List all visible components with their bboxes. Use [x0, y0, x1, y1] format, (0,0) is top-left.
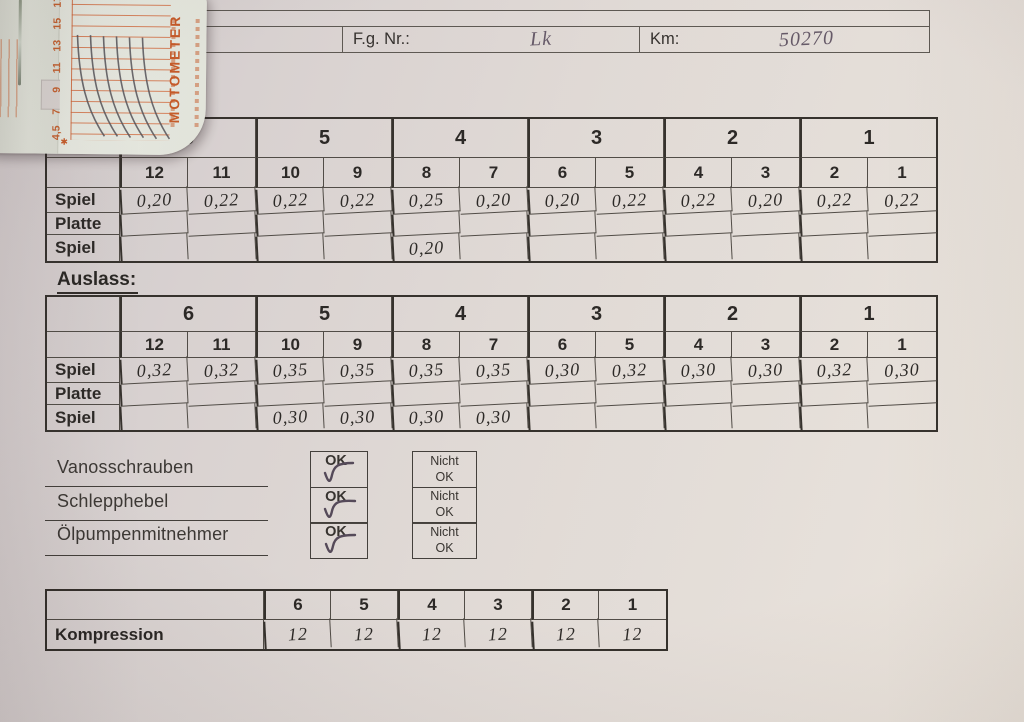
cylinder-group-header: 5	[256, 119, 392, 158]
scale-tick: 13	[51, 36, 63, 56]
card-fine-print	[195, 17, 200, 127]
compression-value-cell: 12	[598, 618, 666, 650]
measurement-cell: 0,32	[187, 356, 256, 385]
measurement-cell: 0,25	[391, 186, 460, 215]
measurement-cell	[867, 403, 936, 432]
measurement-cell: 0,22	[187, 186, 256, 215]
header-row: F.g. Nr.: Lk Km: 50270	[187, 26, 929, 52]
valve-number-header: 2	[800, 158, 868, 188]
measurement-cell	[731, 233, 800, 263]
measurement-cell: 0,30	[527, 356, 596, 385]
row-label: Spiel	[47, 358, 120, 383]
ok-checkbox-column: OK OK OK	[310, 451, 368, 559]
cylinder-group-header: 5	[256, 297, 392, 332]
measurement-cell	[799, 403, 868, 432]
cylinder-number-header: 3	[465, 591, 532, 620]
valve-number-header: 12	[120, 332, 188, 358]
measurement-cell	[187, 233, 256, 263]
cylinder-group-header: 3	[528, 297, 664, 332]
measurement-cell: 0,30	[663, 356, 732, 385]
scale-tick: 9	[51, 80, 63, 100]
valve-number-header: 3	[732, 332, 800, 358]
cylinder-number-header: 6	[264, 591, 331, 620]
oelpumpenmitnehmer-label: Ölpumpenmitnehmer	[57, 524, 228, 545]
motometer-brand: MOTOMETER	[166, 15, 183, 124]
measurement-cell	[323, 233, 392, 263]
measurement-cell	[663, 233, 732, 263]
valve-number-header: 9	[324, 158, 392, 188]
km-cell: Km: 50270	[640, 27, 929, 52]
vehicle-number-label: F.g. Nr.:	[353, 30, 410, 49]
vehicle-number-cell: F.g. Nr.: Lk	[343, 27, 640, 52]
pressure-scale: 17 15 13 11 9 7 4,5	[46, 0, 68, 154]
spacer-cell	[47, 332, 120, 358]
underline	[45, 555, 268, 556]
nicht-ok-label-line1: Nicht	[430, 525, 458, 541]
valve-number-header: 8	[392, 332, 460, 358]
measurement-cell	[119, 403, 188, 432]
cylinder-number-header: 2	[532, 591, 599, 620]
measurement-cell: 0,22	[255, 186, 324, 215]
row-label: Spiel	[47, 188, 120, 213]
valve-number-header: 7	[460, 158, 528, 188]
valve-number-header: 5	[596, 332, 664, 358]
ok-checkbox-vanosschrauben[interactable]: OK	[310, 451, 368, 488]
scale-tick: 15	[52, 14, 64, 34]
valve-number-header: 9	[324, 332, 392, 358]
measurement-cell: 0,22	[323, 186, 392, 215]
nicht-ok-label-line2: OK	[435, 505, 453, 521]
nicht-ok-checkbox-column: Nicht OK Nicht OK Nicht OK	[412, 451, 477, 559]
measurement-cell	[119, 233, 188, 263]
kompression-row-label: Kompression	[47, 620, 264, 649]
measurement-cell: 0,30	[731, 356, 800, 385]
measurement-cell: 0,35	[255, 356, 324, 385]
cylinder-number-header: 5	[331, 591, 398, 620]
cylinder-group-header: 4	[392, 119, 528, 158]
measurement-cell	[255, 233, 324, 263]
nicht-ok-checkbox-vanosschrauben[interactable]: Nicht OK	[412, 451, 477, 488]
valve-number-header: 6	[528, 332, 596, 358]
nicht-ok-label-line2: OK	[435, 541, 453, 557]
scale-tick: 11	[51, 58, 63, 78]
underline	[45, 520, 268, 521]
measurement-cell: 0,20	[459, 186, 528, 215]
measurement-cell: 0,32	[595, 356, 664, 385]
scale-tick: 7	[51, 102, 63, 122]
photographed-inspection-form: { "header": { "fg_label": "F.g. Nr.:", "…	[0, 0, 1024, 722]
row-label: Platte	[47, 383, 120, 405]
valve-number-header: 6	[528, 158, 596, 188]
scale-tick: 17	[52, 0, 64, 12]
header-empty-cell	[187, 27, 343, 52]
measurement-cell: 0,35	[323, 356, 392, 385]
cylinder-group-header: 6	[120, 297, 256, 332]
measurement-cell	[867, 233, 936, 263]
cylinder-group-header: 3	[528, 119, 664, 158]
ok-checkbox-schlepphebel[interactable]: OK	[310, 487, 368, 524]
measurement-cell	[527, 233, 596, 263]
valve-number-header: 1	[868, 332, 936, 358]
nicht-ok-checkbox-oelpumpenmitnehmer[interactable]: Nicht OK	[412, 522, 477, 559]
row-label: Spiel	[47, 235, 120, 261]
nicht-ok-checkbox-schlepphebel[interactable]: Nicht OK	[412, 487, 477, 524]
cylinder-group-header: 4	[392, 297, 528, 332]
measurement-cell: 0,30	[867, 356, 936, 385]
checkmark-icon	[319, 532, 359, 559]
valve-number-header: 3	[732, 158, 800, 188]
measurement-cell: 0,30	[255, 403, 324, 432]
measurement-cell: 0,22	[595, 186, 664, 215]
measurement-cell: 0,20	[391, 233, 460, 263]
km-label: Km:	[650, 30, 679, 49]
underline	[45, 486, 268, 487]
auslass-section-title: Auslass:	[57, 269, 138, 294]
valve-number-header: 7	[460, 332, 528, 358]
spacer-cell	[47, 158, 120, 188]
valve-number-header: 2	[800, 332, 868, 358]
valve-number-header: 10	[256, 332, 324, 358]
measurement-cell	[595, 233, 664, 263]
cylinder-group-header: 2	[664, 119, 800, 158]
valve-number-header: 5	[596, 158, 664, 188]
compression-table: 654321Kompression121212121212	[45, 589, 668, 651]
card-star-mark: ✱	[60, 137, 68, 148]
header-strip: F.g. Nr.: Lk Km: 50270	[186, 10, 930, 53]
measurement-cell	[187, 403, 256, 432]
measurement-cell	[799, 233, 868, 263]
measurement-cell: 0,30	[323, 403, 392, 432]
cylinder-group-header: 1	[800, 119, 936, 158]
measurement-cell: 0,22	[867, 186, 936, 215]
ok-checkbox-oelpumpenmitnehmer[interactable]: OK	[310, 522, 368, 559]
nicht-ok-label-line1: Nicht	[430, 489, 458, 505]
measurement-cell: 0,30	[459, 403, 528, 432]
measurement-cell: 0,20	[731, 186, 800, 215]
exhaust-valve-table: 654321121110987654321Spiel0,320,320,350,…	[45, 295, 938, 432]
measurement-cell	[731, 403, 800, 432]
measurement-cell	[663, 403, 732, 432]
measurement-cell: 0,32	[119, 356, 188, 385]
nicht-ok-label-line1: Nicht	[430, 454, 458, 470]
cylinder-group-header: 1	[800, 297, 936, 332]
valve-number-header: 12	[120, 158, 188, 188]
measurement-cell: 0,22	[799, 186, 868, 215]
cylinder-number-header: 4	[398, 591, 465, 620]
corner-cell	[47, 297, 120, 332]
measurement-cell	[459, 233, 528, 263]
measurement-cell: 0,22	[663, 186, 732, 215]
cylinder-group-header: 2	[664, 297, 800, 332]
card-fine-print	[0, 39, 22, 117]
compression-value-cell: 12	[464, 618, 532, 650]
compression-value-cell: 12	[531, 618, 599, 650]
measurement-cell: 0,30	[391, 403, 460, 432]
row-label: Platte	[47, 213, 120, 235]
corner-cell	[47, 591, 264, 620]
valve-number-header: 11	[188, 332, 256, 358]
valve-number-header: 10	[256, 158, 324, 188]
measurement-cell	[527, 403, 596, 432]
nicht-ok-label-line2: OK	[435, 470, 453, 486]
valve-number-header: 4	[664, 332, 732, 358]
vanosschrauben-label: Vanosschrauben	[57, 457, 194, 478]
compression-value-cell: 12	[263, 618, 331, 650]
vehicle-number-value: Lk	[529, 28, 552, 52]
row-label: Spiel	[47, 405, 120, 430]
checkmark-icon	[319, 497, 359, 524]
km-value: 50270	[779, 27, 835, 52]
motometer-tester-card: 17 15 13 11 9 7 4,5 MOTOMETER ✱	[0, 0, 207, 155]
measurement-cell	[595, 403, 664, 432]
measurement-cell: 0,35	[459, 356, 528, 385]
cylinder-number-header: 1	[599, 591, 666, 620]
measurement-cell: 0,20	[527, 186, 596, 215]
compression-value-cell: 12	[397, 618, 465, 650]
valve-number-header: 1	[868, 158, 936, 188]
schlepphebel-label: Schlepphebel	[57, 491, 169, 512]
compression-value-cell: 12	[330, 618, 398, 650]
checkmark-icon	[319, 461, 359, 488]
measurement-cell: 0,35	[391, 356, 460, 385]
measurement-cell: 0,32	[799, 356, 868, 385]
valve-number-header: 11	[188, 158, 256, 188]
measurement-cell: 0,20	[119, 186, 188, 215]
valve-number-header: 4	[664, 158, 732, 188]
valve-number-header: 8	[392, 158, 460, 188]
